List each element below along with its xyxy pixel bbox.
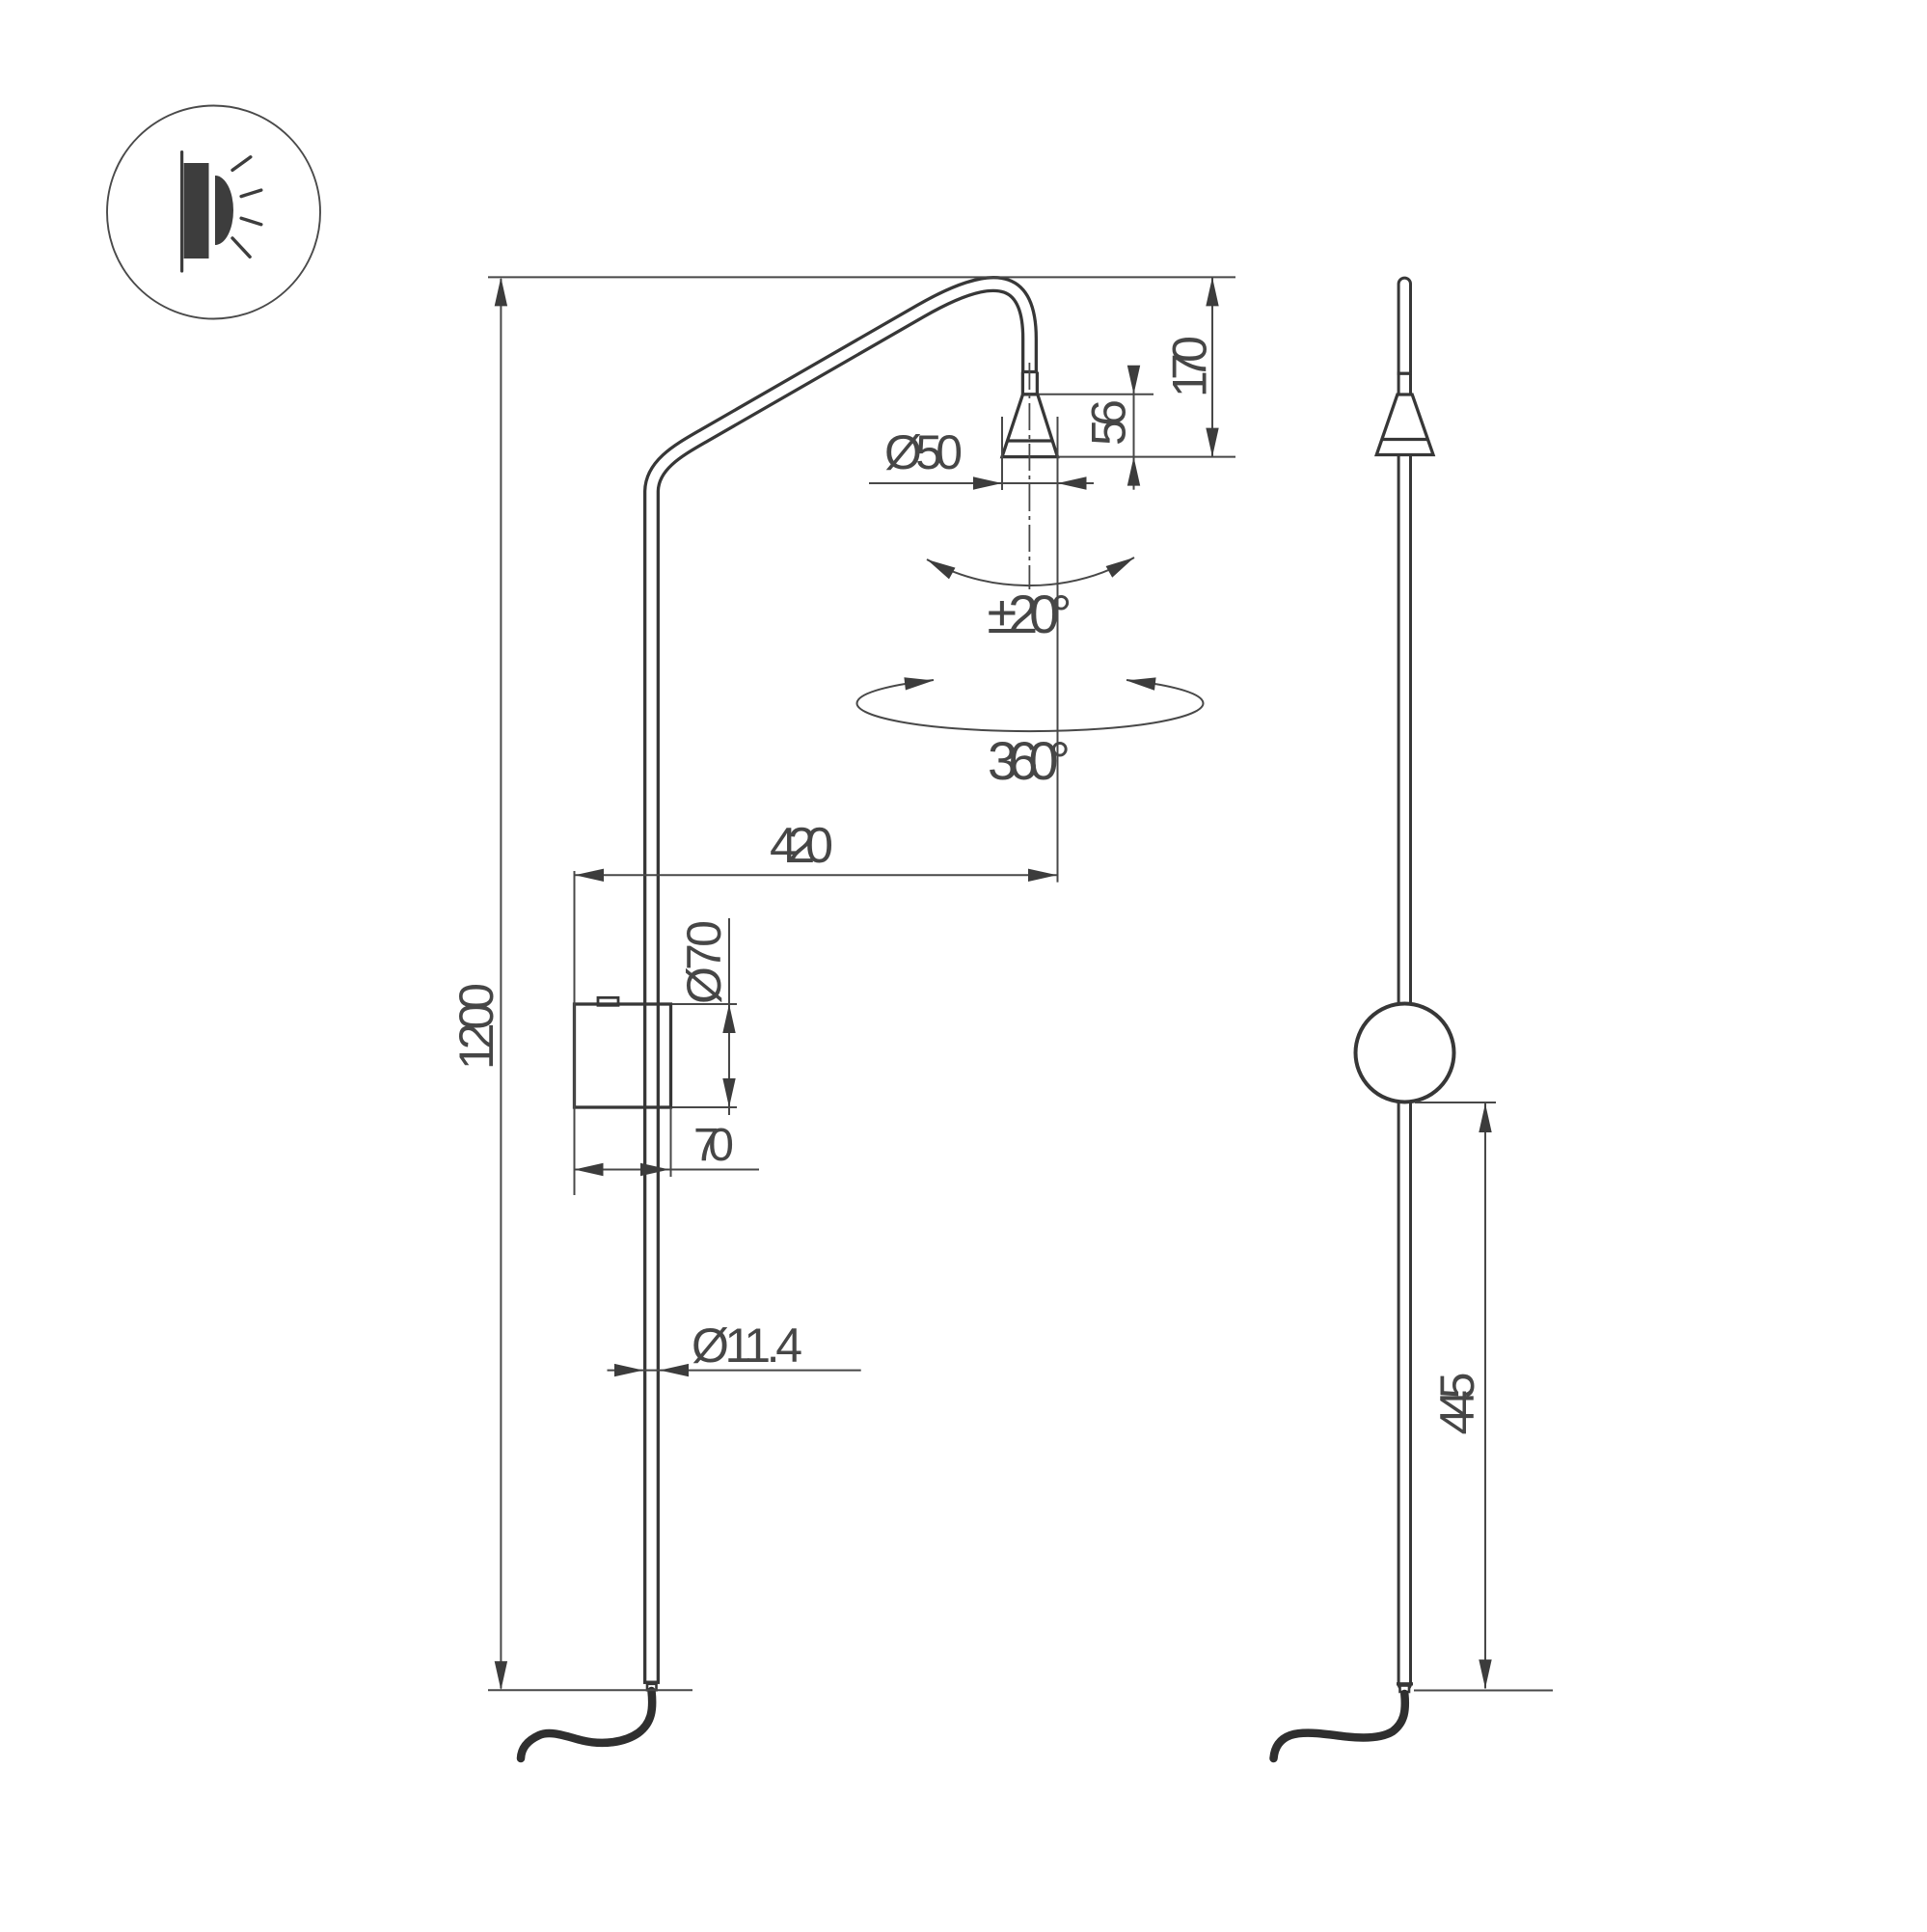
svg-text:445: 445 [1430,1373,1484,1435]
svg-text:Ø70: Ø70 [677,920,731,1004]
svg-text:1200: 1200 [449,983,503,1070]
svg-text:360°: 360° [988,730,1071,791]
svg-text:±20°: ±20° [988,584,1072,644]
svg-text:420: 420 [770,818,833,874]
svg-text:Ø11.4: Ø11.4 [692,1319,802,1373]
svg-text:170: 170 [1163,336,1217,397]
svg-text:56: 56 [1082,399,1136,446]
svg-text:Ø50: Ø50 [884,425,963,479]
svg-text:70: 70 [693,1120,734,1171]
